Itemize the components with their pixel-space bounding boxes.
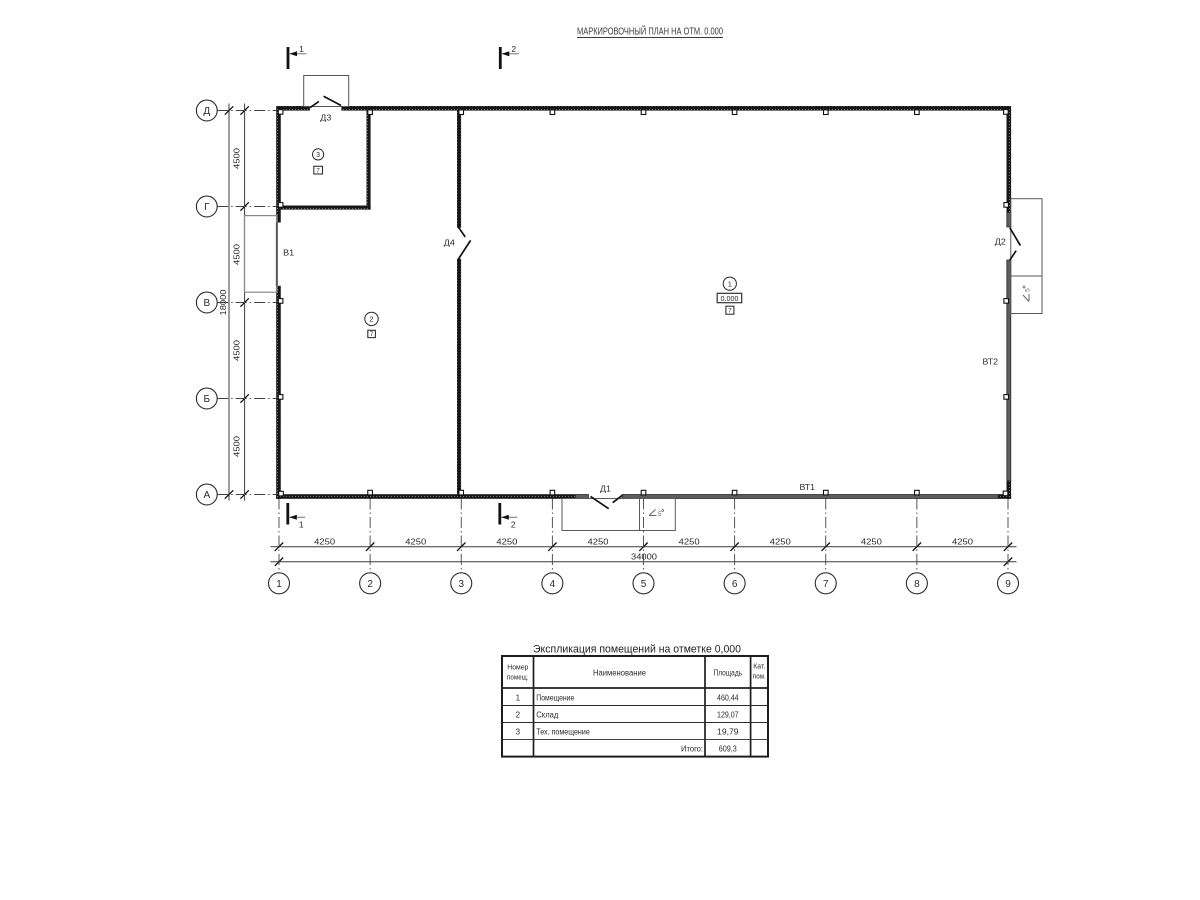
svg-text:Площадь: Площадь	[714, 669, 743, 678]
svg-text:Д2: Д2	[995, 237, 1007, 246]
svg-text:2: 2	[367, 579, 373, 590]
svg-text:1: 1	[516, 693, 521, 702]
svg-text:5: 5	[641, 579, 647, 590]
svg-text:Наименование: Наименование	[593, 669, 647, 678]
svg-text:Г: Г	[204, 202, 210, 213]
svg-text:Помещение: Помещение	[536, 693, 574, 702]
svg-text:Экспликация помещений на отмет: Экспликация помещений на отметке 0,000	[533, 644, 741, 656]
svg-text:34000: 34000	[631, 553, 658, 562]
svg-text:129,07: 129,07	[717, 710, 739, 719]
svg-text:4: 4	[550, 579, 556, 590]
svg-text:Тех. помещение: Тех. помещение	[536, 727, 590, 736]
svg-text:Д1: Д1	[600, 485, 612, 494]
svg-text:1: 1	[728, 279, 732, 288]
svg-text:4250: 4250	[770, 537, 792, 546]
svg-text:Итого:: Итого:	[681, 744, 703, 753]
svg-text:7: 7	[823, 579, 829, 590]
svg-text:Д: Д	[203, 106, 210, 117]
svg-text:ВТ1: ВТ1	[800, 483, 816, 492]
svg-text:МАРКИРОВОЧНЫЙ ПЛАН НА ОТМ. 0.0: МАРКИРОВОЧНЫЙ ПЛАН НА ОТМ. 0.000	[577, 25, 723, 38]
svg-text:пом.: пом.	[753, 672, 766, 681]
svg-text:4250: 4250	[587, 537, 609, 546]
svg-text:4500: 4500	[232, 339, 241, 361]
svg-text:609,3: 609,3	[719, 744, 737, 753]
svg-text:6: 6	[732, 579, 738, 590]
svg-text:3: 3	[316, 152, 320, 159]
svg-text:1: 1	[299, 520, 304, 530]
svg-text:Номер: Номер	[507, 663, 528, 672]
svg-text:4500: 4500	[232, 243, 241, 265]
svg-text:Кат.: Кат.	[753, 662, 765, 671]
svg-text:2: 2	[511, 520, 516, 530]
svg-text:2: 2	[369, 315, 373, 324]
svg-text:4500: 4500	[232, 435, 241, 457]
svg-text:1: 1	[299, 44, 304, 54]
svg-text:0.000: 0.000	[721, 296, 739, 303]
svg-text:4250: 4250	[496, 537, 518, 546]
svg-text:19,79: 19,79	[717, 727, 739, 736]
svg-text:А: А	[203, 490, 210, 501]
svg-text:4250: 4250	[405, 537, 427, 546]
svg-text:4250: 4250	[679, 537, 701, 546]
svg-text:4500: 4500	[232, 147, 241, 169]
svg-text:Д4: Д4	[444, 238, 456, 247]
svg-text:Д3: Д3	[320, 113, 332, 122]
svg-text:ВТ2: ВТ2	[983, 357, 999, 366]
svg-text:В1: В1	[283, 248, 295, 257]
svg-text:2: 2	[511, 44, 516, 54]
svg-text:5: 5	[658, 511, 662, 518]
svg-text:5: 5	[1025, 288, 1032, 292]
svg-text:помещ.: помещ.	[507, 673, 529, 682]
svg-text:2: 2	[516, 710, 521, 719]
svg-text:В: В	[203, 298, 210, 309]
svg-text:1: 1	[276, 579, 282, 590]
svg-text:460,44: 460,44	[717, 693, 739, 702]
svg-text:3: 3	[458, 579, 464, 590]
svg-text:9: 9	[1005, 579, 1011, 590]
svg-text:8: 8	[914, 579, 920, 590]
svg-text:Склад: Склад	[536, 710, 558, 719]
svg-text:4250: 4250	[952, 537, 974, 546]
svg-text:3: 3	[516, 727, 521, 736]
svg-text:4250: 4250	[861, 537, 883, 546]
svg-text:4250: 4250	[314, 537, 336, 546]
svg-text:Б: Б	[204, 394, 211, 405]
